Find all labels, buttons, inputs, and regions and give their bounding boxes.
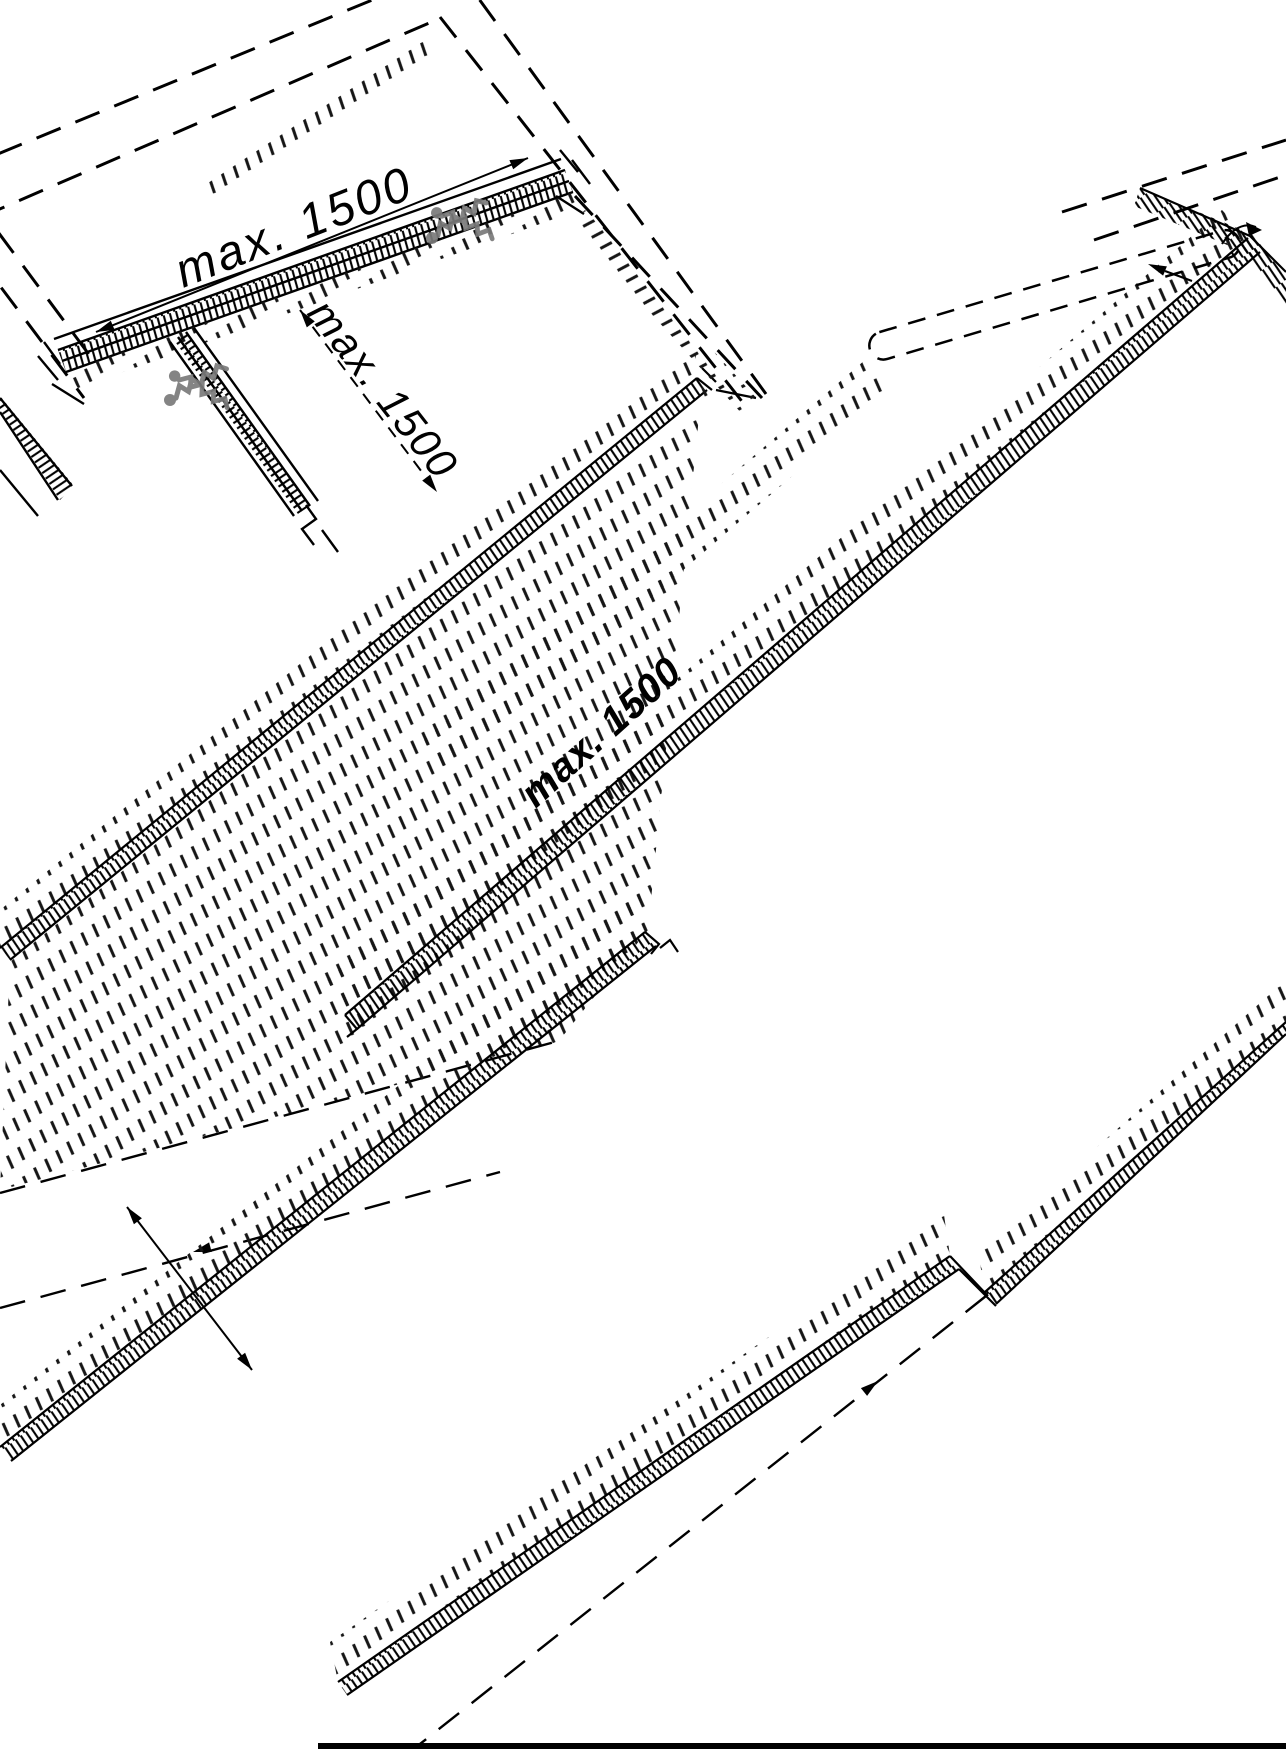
dimension-slope: max. 1500 bbox=[299, 290, 468, 492]
technical-drawing-page: max. 1500 max. 1500 max. 1500 bbox=[0, 0, 1286, 1750]
arrowhead bbox=[509, 158, 528, 169]
arrowhead bbox=[237, 1353, 252, 1370]
dimension-label-slope: max. 1500 bbox=[299, 290, 468, 488]
slope-batten bbox=[170, 328, 338, 552]
arrowhead bbox=[127, 1207, 142, 1224]
arrowhead bbox=[861, 1381, 878, 1396]
gable-battens bbox=[0, 396, 74, 516]
ridge-batten bbox=[38, 150, 590, 404]
technical-drawing: max. 1500 max. 1500 max. 1500 bbox=[0, 0, 1286, 1750]
